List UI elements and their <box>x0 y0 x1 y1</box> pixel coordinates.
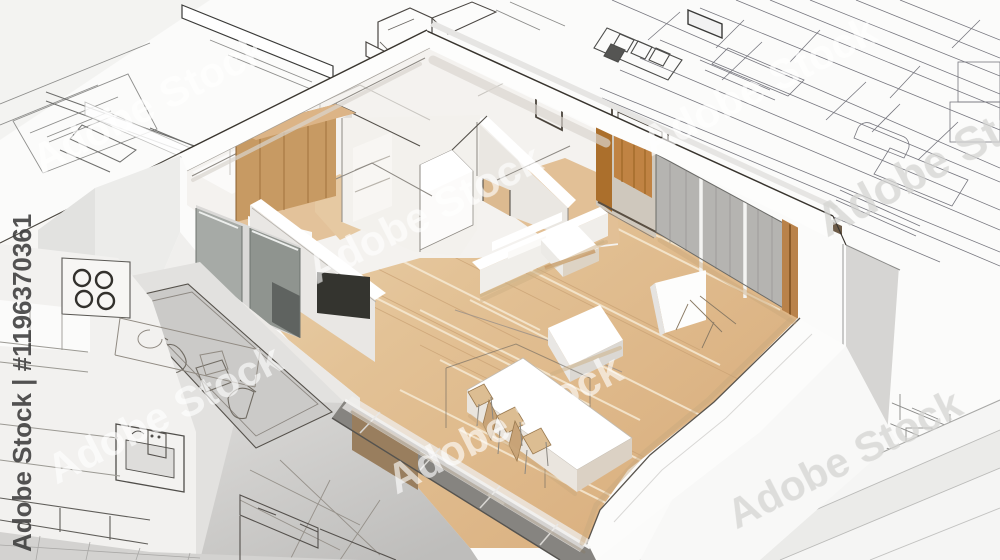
svg-text:Adobe Stock | #1196370361: Adobe Stock | #1196370361 <box>7 214 37 552</box>
